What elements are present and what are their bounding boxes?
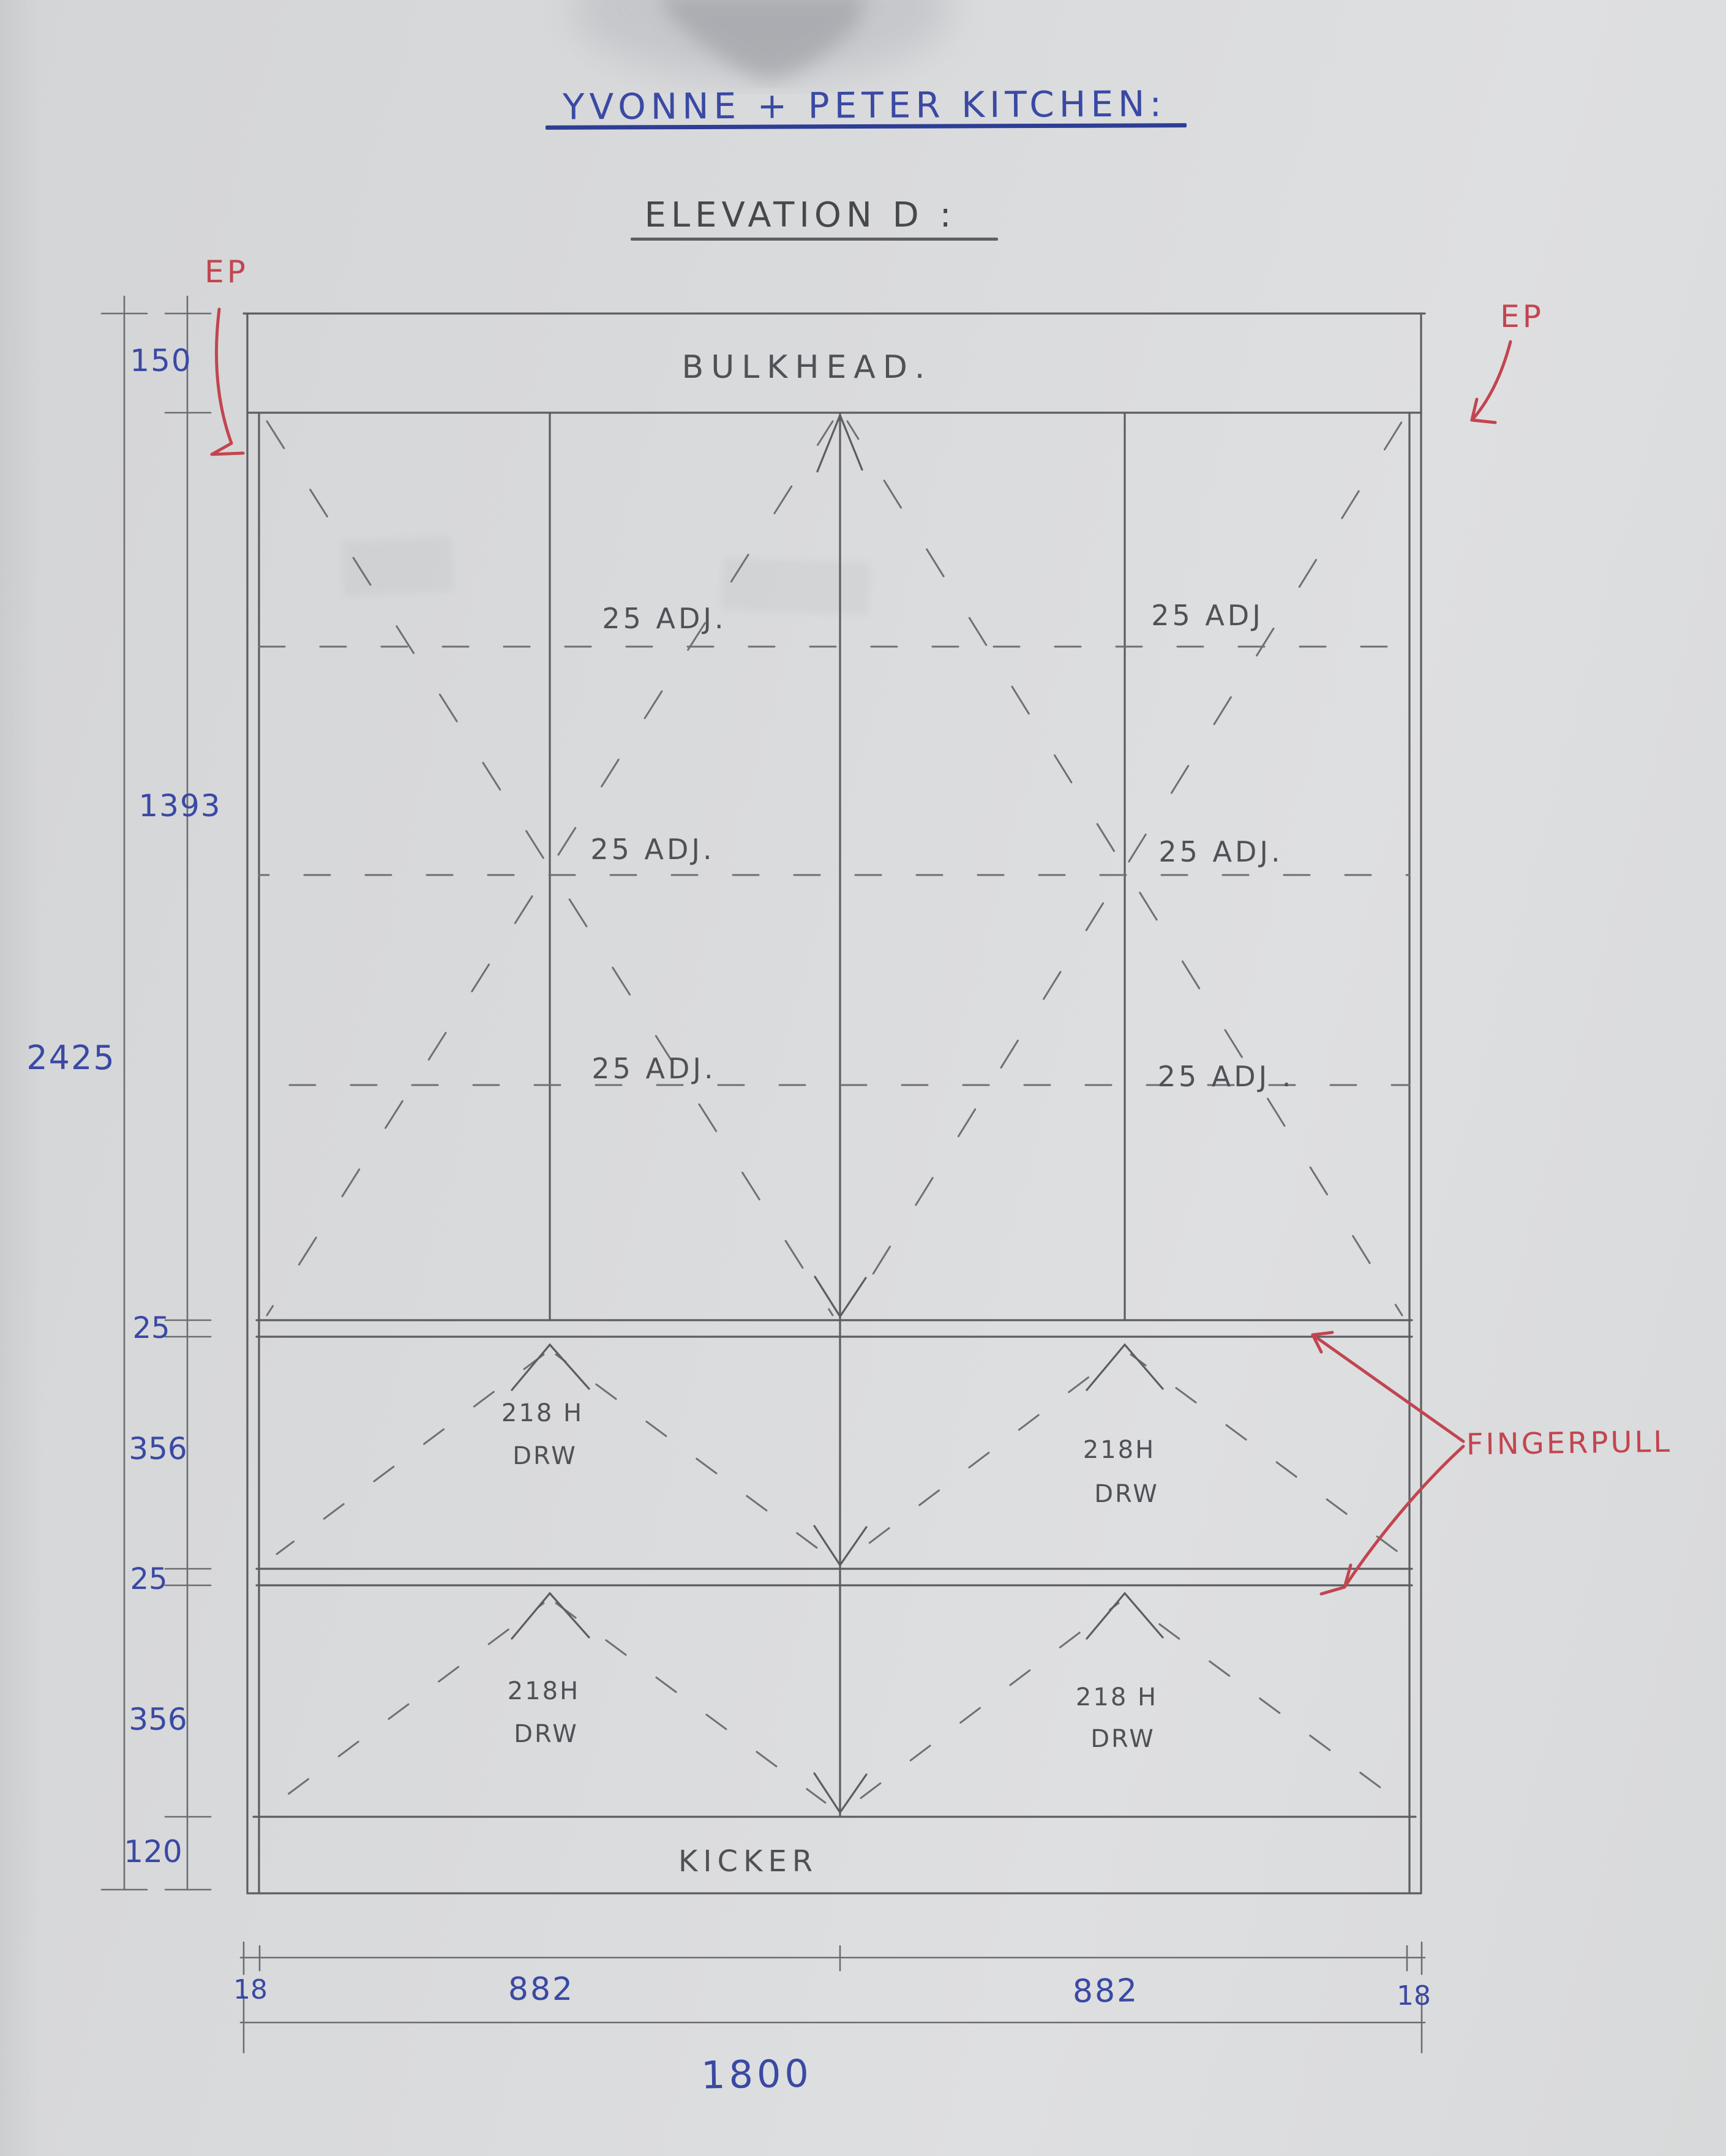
elevation-drawing bbox=[0, 0, 1726, 2156]
dim-rail-25-mid: 25 bbox=[130, 1564, 167, 1594]
dim-bay-882-right: 882 bbox=[1073, 1975, 1139, 2008]
dim-kicker-120: 120 bbox=[124, 1836, 182, 1867]
shelf-label-row1-right: 25 ADJ bbox=[1151, 601, 1264, 629]
dim-end-18-left: 18 bbox=[233, 1977, 268, 2004]
dim-rail-25-top: 25 bbox=[132, 1313, 170, 1343]
shelf-label-row3-right: 25 ADJ . bbox=[1158, 1062, 1294, 1091]
fingerpull-arrows bbox=[1313, 1332, 1463, 1594]
subtitle-underline bbox=[631, 238, 998, 241]
dim-end-18-right: 18 bbox=[1397, 1983, 1431, 2010]
dim-drawer2-356: 356 bbox=[129, 1704, 187, 1735]
cabinet-frame bbox=[244, 314, 1425, 1893]
drawer1-right-label-type: DRW bbox=[1094, 1482, 1159, 1506]
drawer1-left-label-height: 218 H bbox=[501, 1401, 583, 1425]
dim-doors-1393: 1393 bbox=[138, 791, 221, 821]
ep-label-right: EP bbox=[1500, 301, 1544, 332]
drawer-swing-lines bbox=[277, 1354, 1401, 1803]
shelf-label-row2-right: 25 ADJ. bbox=[1158, 838, 1283, 866]
drawer2-right-label-height: 218 H bbox=[1076, 1685, 1158, 1710]
dim-drawer1-356: 356 bbox=[129, 1433, 187, 1464]
bottom-dimension-lines bbox=[241, 1942, 1425, 2053]
elevation-subtitle: ELEVATION D : bbox=[645, 198, 956, 233]
dim-total-2425: 2425 bbox=[26, 1042, 115, 1075]
elevation-sheet: YVONNE + PETER KITCHEN: ELEVATION D : BU… bbox=[0, 0, 1726, 2156]
drawer1-right-label-height: 218H bbox=[1083, 1438, 1155, 1462]
drawer2-right-label-type: DRW bbox=[1090, 1727, 1155, 1751]
shelf-label-row2-left: 25 ADJ. bbox=[590, 835, 715, 863]
bulkhead-label: BULKHEAD. bbox=[682, 351, 932, 383]
ep-right-arrow bbox=[1472, 342, 1510, 423]
drawer2-left-label-type: DRW bbox=[514, 1722, 579, 1746]
door-swing-lines bbox=[267, 421, 1402, 1315]
left-dimension-lines bbox=[102, 296, 211, 1890]
dim-overall-1800: 1800 bbox=[701, 2054, 813, 2094]
drawer2-left-label-height: 218H bbox=[508, 1679, 580, 1703]
page-title: YVONNE + PETER KITCHEN: bbox=[563, 86, 1166, 124]
kicker-label: KICKER bbox=[678, 1847, 818, 1876]
drawer1-left-label-type: DRW bbox=[512, 1444, 577, 1468]
ep-label-left: EP bbox=[204, 257, 249, 287]
fingerpull-label: FINGERPULL bbox=[1466, 1427, 1673, 1460]
dim-bulkhead-150: 150 bbox=[130, 345, 192, 376]
shelf-label-row1-left: 25 ADJ. bbox=[602, 604, 726, 633]
shadow-smudge bbox=[572, 0, 952, 80]
ep-left-arrow bbox=[212, 309, 243, 454]
shelf-label-row3-left: 25 ADJ. bbox=[591, 1054, 716, 1083]
dim-bay-882-left: 882 bbox=[508, 1974, 574, 2005]
